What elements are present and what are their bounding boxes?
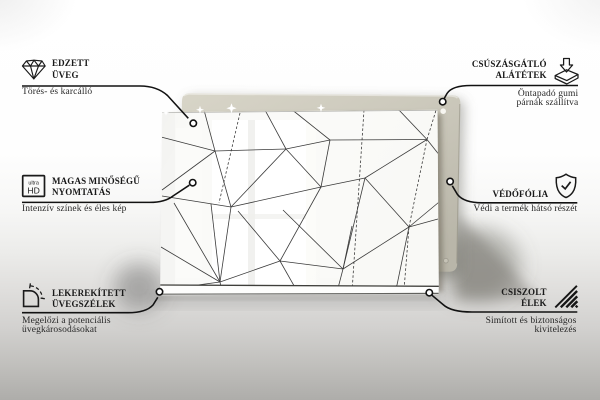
svg-text:HD: HD <box>27 185 39 195</box>
